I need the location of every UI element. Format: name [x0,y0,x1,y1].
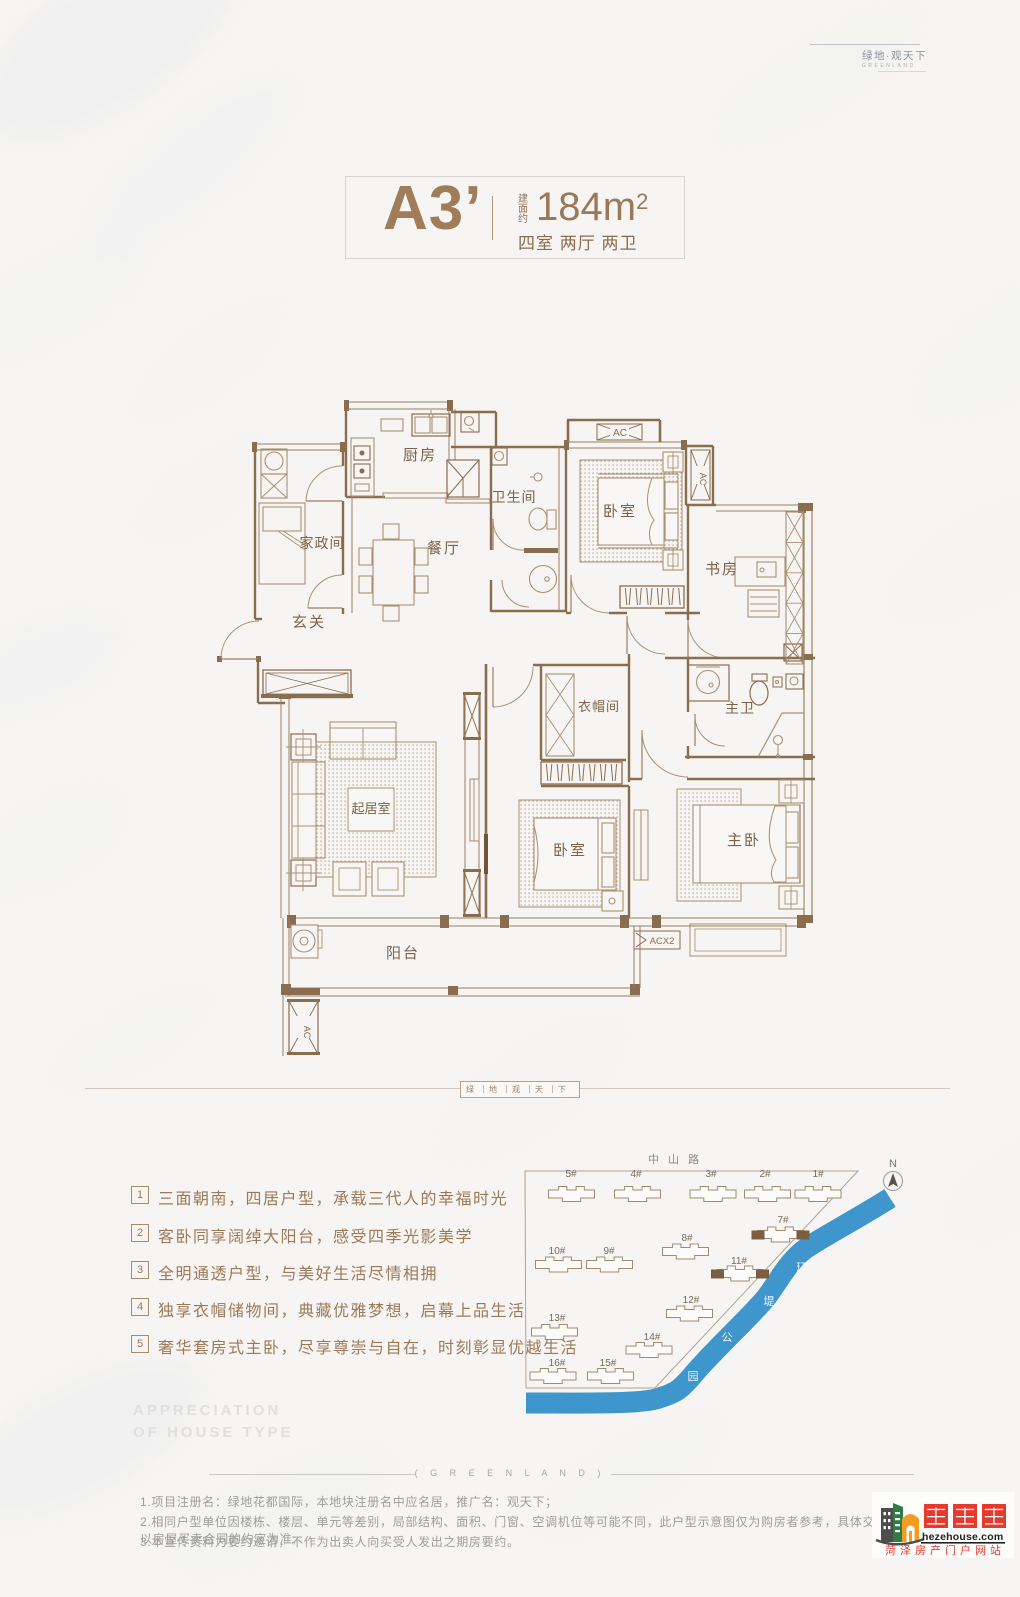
svg-text:主卫: 主卫 [725,700,755,716]
svg-text:9#: 9# [603,1246,615,1257]
svg-text:16#: 16# [549,1358,566,1369]
svg-text:1#: 1# [812,1169,824,1180]
svg-text:起居室: 起居室 [351,801,390,816]
svg-text:15#: 15# [600,1358,617,1369]
svg-text:hezehouse.com: hezehouse.com [922,1531,1003,1543]
svg-text:ACX2: ACX2 [650,936,675,947]
svg-text:阳台: 阳台 [386,945,420,962]
svg-text:10#: 10# [549,1246,566,1257]
svg-text:N: N [889,1158,897,1170]
svg-text:7#: 7# [777,1215,789,1226]
svg-text:12#: 12# [683,1295,700,1306]
svg-text:堤: 堤 [764,1295,775,1308]
svg-text:公: 公 [722,1332,733,1344]
svg-text:13#: 13# [549,1313,566,1324]
svg-text:书房: 书房 [705,561,739,578]
svg-text:14#: 14# [644,1332,661,1343]
svg-text:菏泽房产门户网站: 菏泽房产门户网站 [885,1543,1005,1557]
svg-text:卧室: 卧室 [553,842,587,859]
svg-text:8#: 8# [681,1233,693,1244]
svg-text:5#: 5# [565,1169,577,1180]
svg-text:AC: AC [698,473,708,486]
svg-text:卫生间: 卫生间 [492,489,537,505]
svg-text:3#: 3# [705,1169,717,1180]
svg-text:园: 园 [688,1370,699,1383]
svg-text:2#: 2# [759,1169,771,1180]
svg-text:主卧: 主卧 [727,832,761,849]
svg-text:中山路: 中山路 [648,1153,708,1166]
svg-text:厨房: 厨房 [403,447,437,464]
svg-text:餐厅: 餐厅 [427,540,461,557]
svg-text:11#: 11# [731,1256,747,1267]
svg-text:4#: 4# [630,1169,642,1180]
svg-text:玄关: 玄关 [292,614,326,631]
svg-text:环: 环 [797,1262,808,1274]
svg-text:AC: AC [613,428,627,439]
svg-text:卧室: 卧室 [603,503,637,520]
svg-text:家政间: 家政间 [300,535,345,551]
svg-text:AC: AC [302,1026,312,1039]
svg-text:衣帽间: 衣帽间 [578,699,620,714]
